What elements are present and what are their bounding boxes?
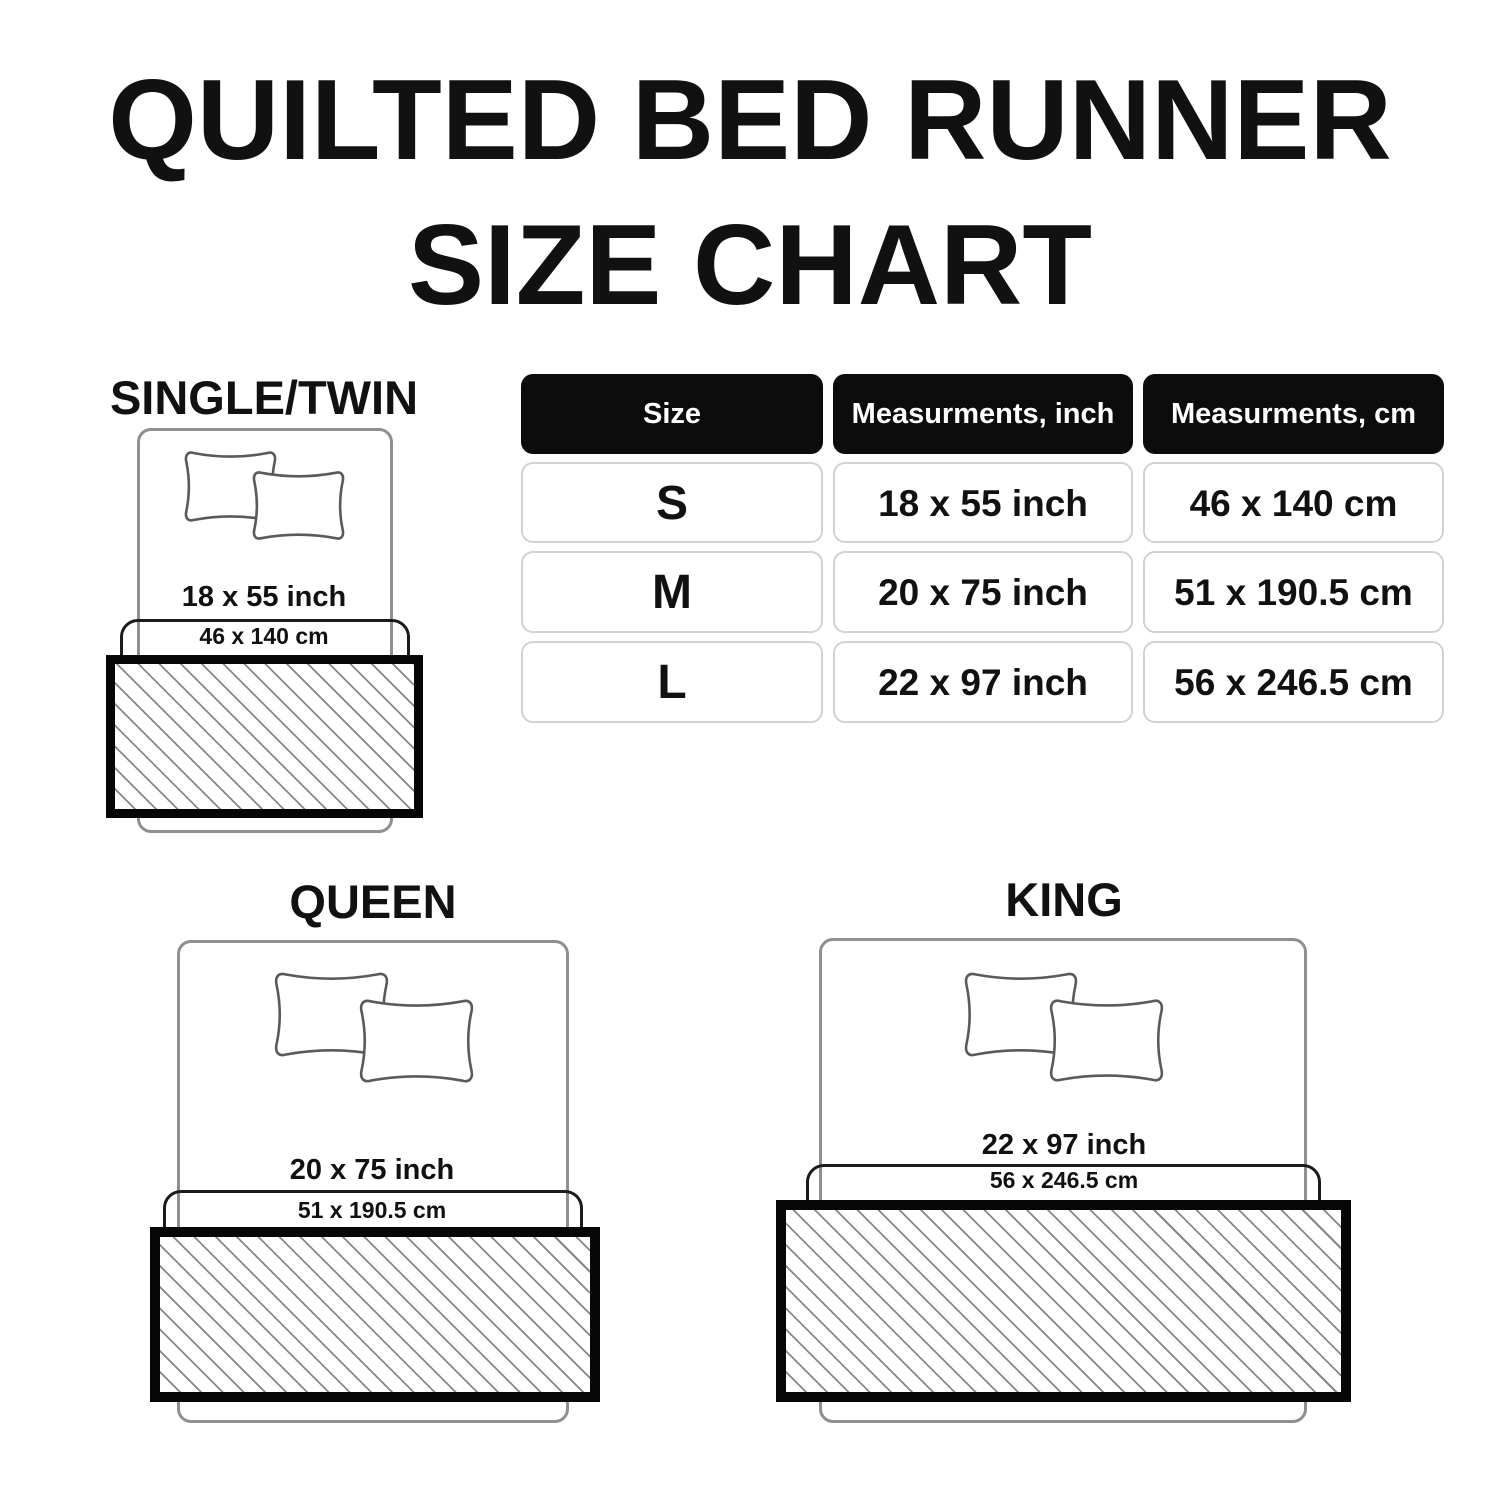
- diagram-king-label: KING: [864, 874, 1264, 926]
- runner-size-inch-label: 20 x 75 inch: [172, 1154, 572, 1187]
- runner-size-cm-label: 51 x 190.5 cm: [172, 1197, 572, 1223]
- table-cell-size-l: L: [521, 641, 823, 723]
- pillow-icon: [350, 993, 483, 1089]
- table-cell-size-s: S: [521, 462, 823, 543]
- table-cell-size-m: M: [521, 551, 823, 633]
- page-title-line2: SIZE CHART: [408, 202, 1092, 329]
- runner-size-cm-label: 56 x 246.5 cm: [864, 1167, 1264, 1193]
- page-title: QUILTED BED RUNNER SIZE CHART: [0, 48, 1500, 338]
- table-header-size: Size: [521, 374, 823, 454]
- page-title-line1: QUILTED BED RUNNER: [108, 57, 1392, 184]
- bed-runner-hatched: [150, 1227, 600, 1402]
- table-header-inch: Measurments, inch: [833, 374, 1133, 454]
- table-cell-cm-l: 56 x 246.5 cm: [1143, 641, 1444, 723]
- runner-size-inch-label: 18 x 55 inch: [64, 581, 464, 614]
- table-cell-cm-m: 51 x 190.5 cm: [1143, 551, 1444, 633]
- pillow-icon: [1040, 993, 1173, 1088]
- bed-runner-hatched: [106, 655, 423, 818]
- bed-runner-hatched: [776, 1200, 1351, 1402]
- pillow-icon: [245, 466, 352, 545]
- table-header-cm: Measurments, cm: [1143, 374, 1444, 454]
- table-cell-inch-s: 18 x 55 inch: [833, 462, 1133, 543]
- table-cell-inch-m: 20 x 75 inch: [833, 551, 1133, 633]
- diagram-queen-label: QUEEN: [173, 876, 573, 928]
- table-cell-inch-l: 22 x 97 inch: [833, 641, 1133, 723]
- diagram-single-twin-label: SINGLE/TWIN: [64, 372, 464, 424]
- table-cell-cm-s: 46 x 140 cm: [1143, 462, 1444, 543]
- size-chart-infographic: QUILTED BED RUNNER SIZE CHART SINGLE/TWI…: [0, 0, 1500, 1500]
- runner-size-cm-label: 46 x 140 cm: [64, 623, 464, 649]
- runner-size-inch-label: 22 x 97 inch: [864, 1129, 1264, 1162]
